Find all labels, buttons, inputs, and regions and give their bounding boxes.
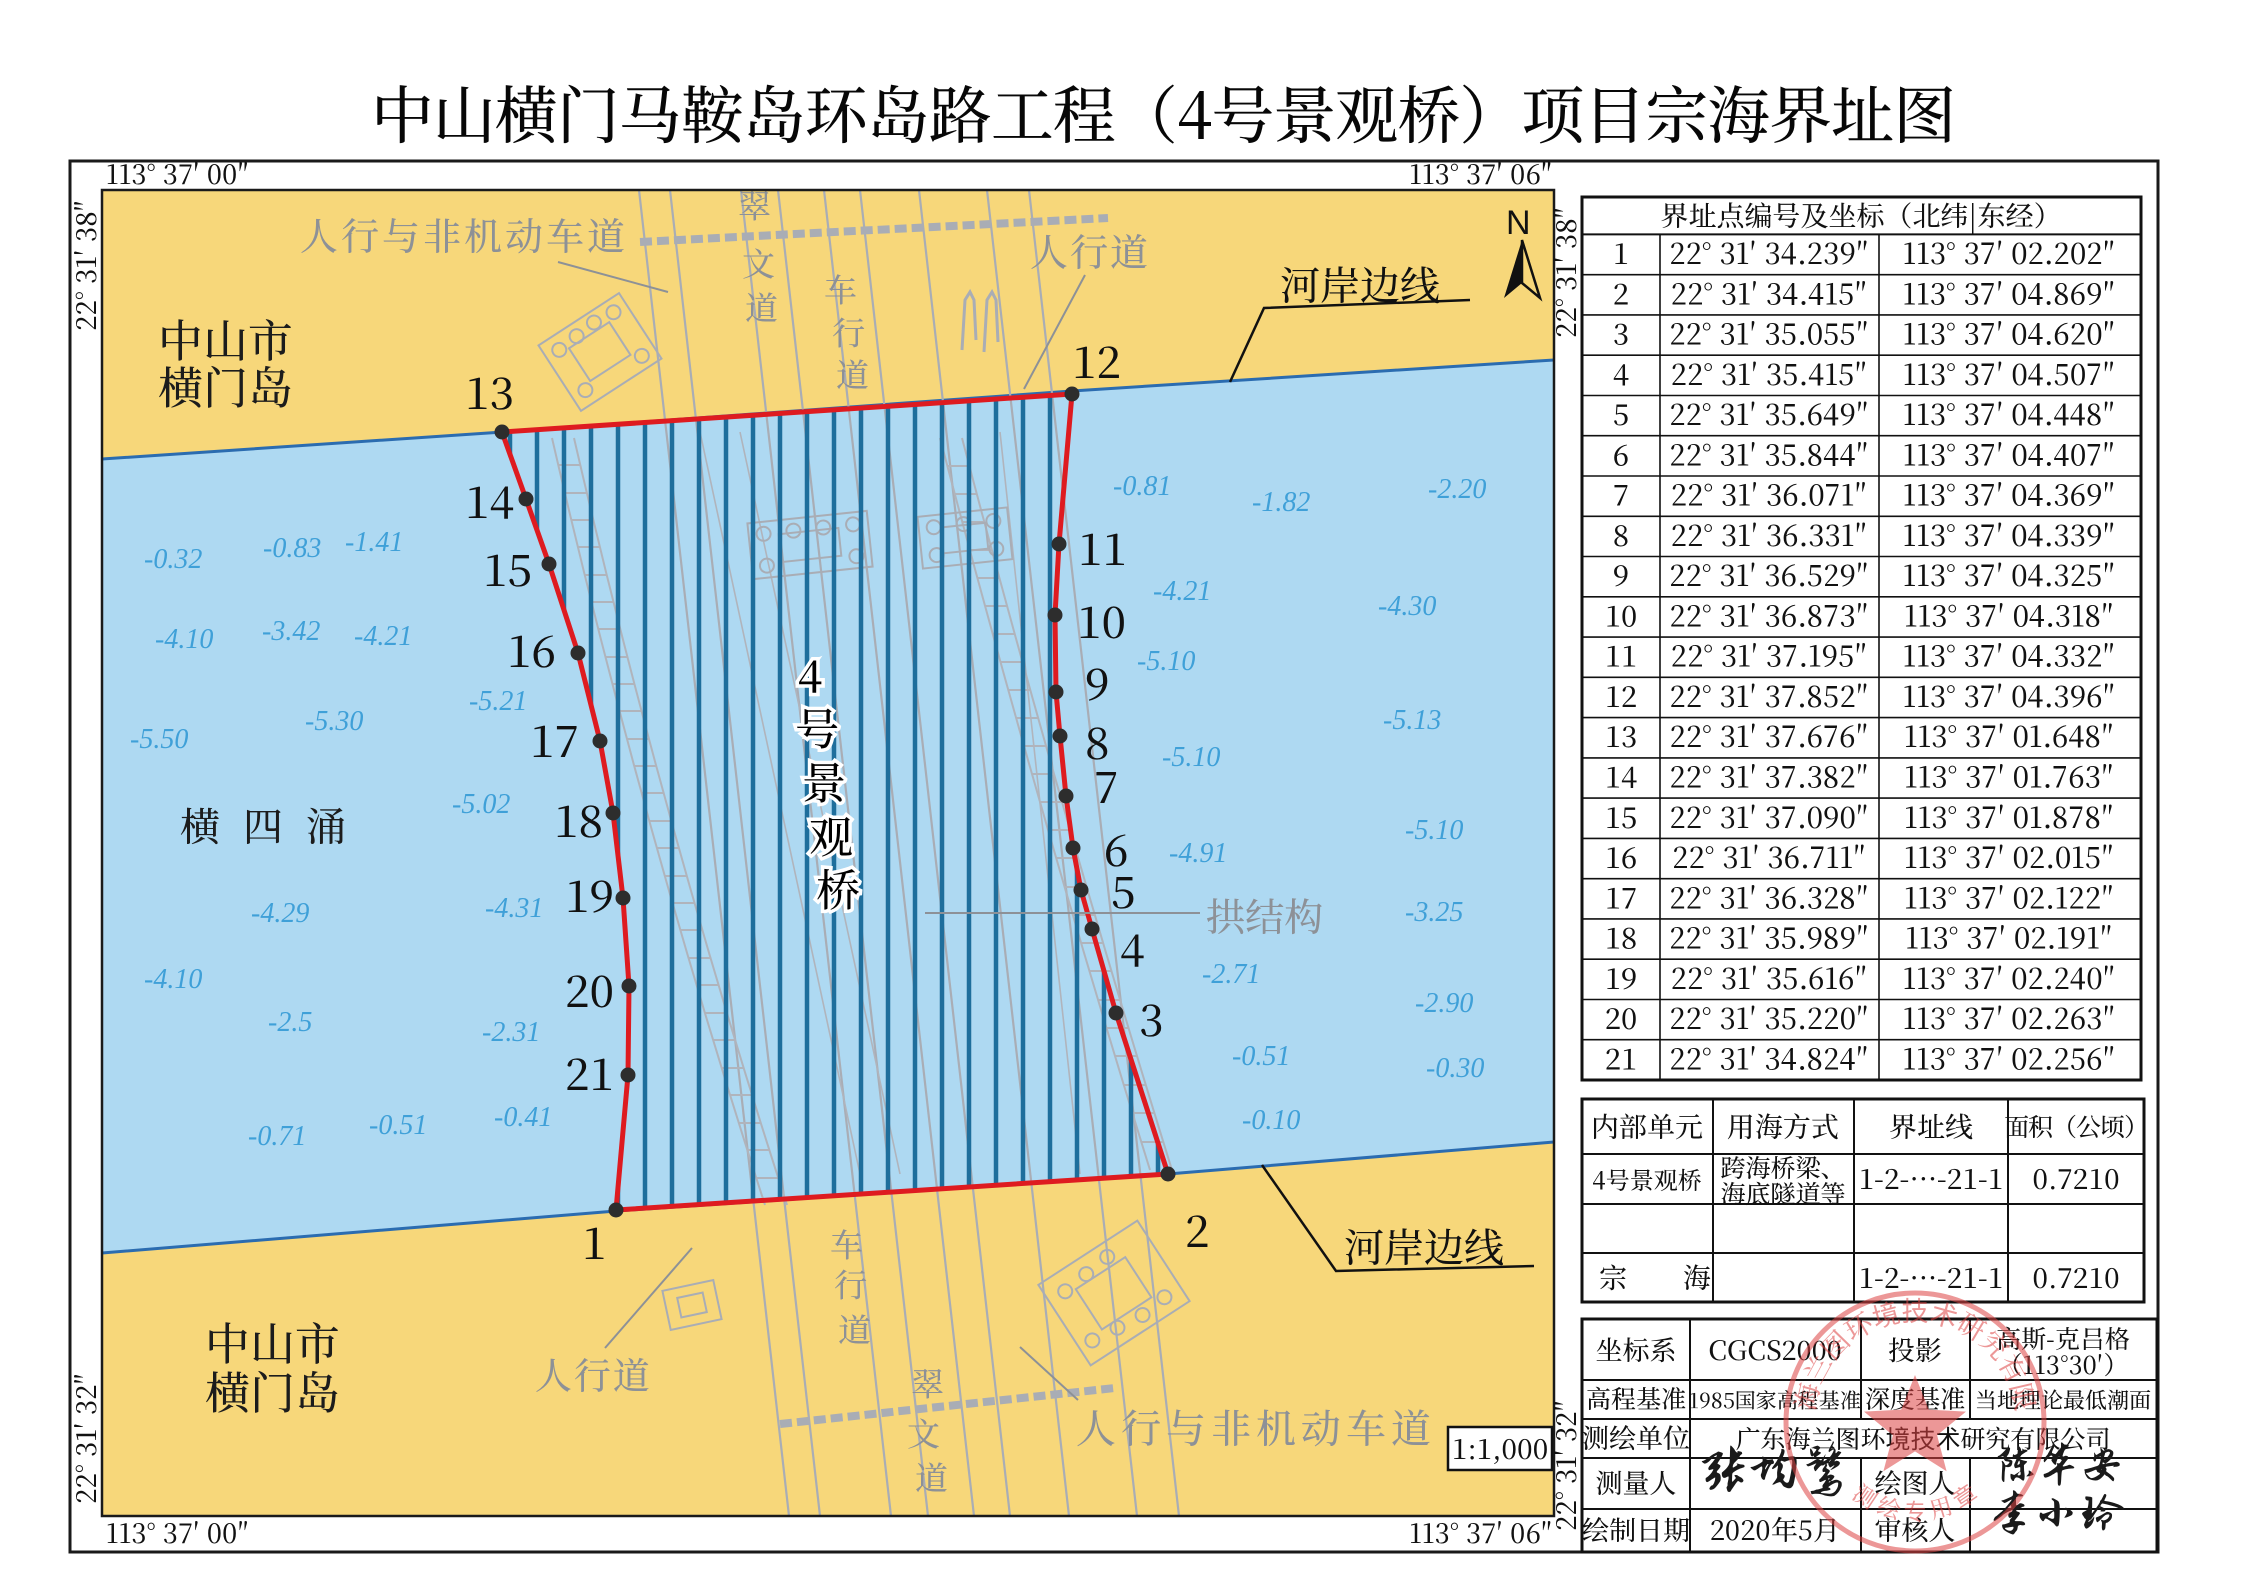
svg-text:22° 31′ 37.852″: 22° 31′ 37.852″ — [1669, 675, 1869, 716]
svg-text:18: 18 — [1605, 917, 1637, 958]
svg-text:113° 37′ 00″: 113° 37′ 00″ — [106, 153, 250, 192]
svg-text:-5.30: -5.30 — [305, 706, 363, 737]
svg-text:22° 31′ 37.090″: 22° 31′ 37.090″ — [1669, 796, 1869, 837]
svg-text:14: 14 — [465, 467, 514, 531]
svg-text:界址点编号及坐标（北纬|东经）: 界址点编号及坐标（北纬|东经） — [1661, 195, 2062, 235]
svg-text:文: 文 — [742, 239, 775, 286]
svg-text:-0.32: -0.32 — [144, 544, 202, 575]
svg-text:行: 行 — [834, 1260, 867, 1307]
svg-text:22° 31′ 35.415″: 22° 31′ 35.415″ — [1671, 353, 1868, 394]
svg-text:5: 5 — [1613, 393, 1629, 434]
svg-text:11: 11 — [1078, 514, 1127, 578]
svg-text:海底隧道等: 海底隧道等 — [1720, 1175, 1845, 1211]
svg-text:河岸边线: 河岸边线 — [1344, 1217, 1504, 1274]
svg-text:22° 31′ 36.331″: 22° 31′ 36.331″ — [1671, 514, 1868, 555]
svg-text:113° 37′ 06″: 113° 37′ 06″ — [1409, 1512, 1553, 1551]
svg-text:翠: 翠 — [738, 181, 771, 228]
svg-text:-3.25: -3.25 — [1405, 897, 1463, 928]
svg-text:22° 31′ 32″: 22° 31′ 32″ — [65, 1372, 104, 1503]
svg-text:人行道: 人行道 — [535, 1346, 652, 1400]
svg-text:测绘单位: 测绘单位 — [1582, 1417, 1690, 1456]
svg-text:横门岛: 横门岛 — [205, 1357, 340, 1422]
svg-text:-4.10: -4.10 — [155, 624, 213, 655]
svg-text:-0.83: -0.83 — [263, 533, 321, 564]
svg-text:16: 16 — [1605, 836, 1637, 877]
svg-text:翠: 翠 — [911, 1359, 944, 1406]
svg-text:9: 9 — [1613, 554, 1629, 595]
svg-text:15: 15 — [483, 535, 532, 599]
svg-text:-4.21: -4.21 — [1153, 576, 1211, 607]
svg-text:-1.41: -1.41 — [345, 527, 403, 558]
svg-text:行: 行 — [832, 308, 865, 355]
svg-text:-0.41: -0.41 — [494, 1102, 552, 1133]
svg-text:10: 10 — [1605, 594, 1637, 635]
svg-text:拱结构: 拱结构 — [1206, 887, 1323, 943]
svg-text:113° 37′ 04.507″: 113° 37′ 04.507″ — [1903, 353, 2116, 394]
svg-text:22° 31′ 36.711″: 22° 31′ 36.711″ — [1672, 836, 1866, 877]
svg-text:-5.13: -5.13 — [1383, 705, 1441, 736]
svg-text:113° 37′ 01.878″: 113° 37′ 01.878″ — [1904, 796, 2114, 837]
svg-text:坐标系: 坐标系 — [1596, 1329, 1677, 1368]
svg-text:-0.51: -0.51 — [369, 1110, 427, 1141]
svg-text:-4.29: -4.29 — [251, 898, 309, 929]
svg-text:20: 20 — [1605, 997, 1637, 1038]
svg-text:22° 31′ 37.382″: 22° 31′ 37.382″ — [1669, 756, 1869, 797]
svg-text:113° 37′ 04.325″: 113° 37′ 04.325″ — [1902, 554, 2115, 595]
svg-text:113° 37′ 04.318″: 113° 37′ 04.318″ — [1904, 594, 2114, 635]
svg-text:-5.02: -5.02 — [452, 789, 510, 820]
svg-text:横四涌: 横四涌 — [180, 796, 369, 853]
svg-text:面积（公顷）: 面积（公顷） — [2004, 1108, 2148, 1144]
svg-text:113° 37′ 04.448″: 113° 37′ 04.448″ — [1903, 393, 2116, 434]
svg-text:22° 31′ 35.055″: 22° 31′ 35.055″ — [1669, 313, 1869, 354]
svg-text:9: 9 — [1085, 649, 1110, 713]
svg-text:宗 海: 宗 海 — [1599, 1257, 1711, 1297]
svg-text:N: N — [1506, 204, 1531, 242]
svg-text:10: 10 — [1077, 587, 1126, 651]
svg-text:11: 11 — [1605, 635, 1637, 676]
svg-text:21: 21 — [1605, 1037, 1637, 1078]
svg-text:7: 7 — [1613, 474, 1629, 515]
svg-text:-5.10: -5.10 — [1162, 742, 1220, 773]
svg-text:3: 3 — [1139, 985, 1164, 1049]
svg-text:-5.10: -5.10 — [1137, 646, 1195, 677]
svg-text:-4.21: -4.21 — [354, 621, 412, 652]
svg-text:113° 37′ 04.396″: 113° 37′ 04.396″ — [1902, 675, 2115, 716]
svg-text:113° 37′ 04.407″: 113° 37′ 04.407″ — [1903, 433, 2116, 474]
svg-text:6: 6 — [1613, 433, 1629, 474]
svg-text:测 绘 专 用 章: 测 绘 专 用 章 — [1847, 1475, 1983, 1527]
svg-text:道: 道 — [836, 350, 869, 397]
svg-text:22° 31′ 35.989″: 22° 31′ 35.989″ — [1669, 917, 1869, 958]
svg-text:12: 12 — [1605, 675, 1637, 716]
svg-text:8: 8 — [1613, 514, 1629, 555]
svg-text:113° 37′ 02.015″: 113° 37′ 02.015″ — [1904, 836, 2114, 877]
svg-text:113° 37′ 04.339″: 113° 37′ 04.339″ — [1902, 514, 2115, 555]
svg-text:1: 1 — [582, 1208, 607, 1272]
svg-text:道: 道 — [915, 1453, 948, 1500]
svg-text:17: 17 — [1605, 876, 1637, 917]
svg-text:-5.21: -5.21 — [469, 686, 527, 717]
svg-text:16: 16 — [507, 616, 556, 680]
svg-text:22° 31′ 35.220″: 22° 31′ 35.220″ — [1669, 997, 1869, 1038]
svg-text:桥: 桥 — [816, 855, 860, 919]
svg-text:4: 4 — [1120, 915, 1145, 979]
svg-text:6: 6 — [1104, 815, 1129, 879]
svg-text:-0.30: -0.30 — [1426, 1053, 1484, 1084]
svg-text:-4.10: -4.10 — [144, 964, 202, 995]
svg-text:0.7210: 0.7210 — [2032, 1158, 2119, 1198]
svg-text:-4.30: -4.30 — [1378, 591, 1436, 622]
svg-text:17: 17 — [530, 706, 579, 770]
svg-text:21: 21 — [565, 1039, 614, 1103]
svg-text:113° 37′ 04.869″: 113° 37′ 04.869″ — [1902, 272, 2115, 313]
svg-text:人行与非机动车道: 人行与非机动车道 — [1076, 1398, 1436, 1455]
svg-text:113° 37′ 04.332″: 113° 37′ 04.332″ — [1903, 635, 2116, 676]
svg-text:界址线: 界址线 — [1889, 1106, 1973, 1146]
svg-text:22° 31′ 37.195″: 22° 31′ 37.195″ — [1671, 635, 1868, 676]
svg-text:人行与非机动车道: 人行与非机动车道 — [300, 206, 628, 261]
svg-text:13: 13 — [1605, 715, 1637, 756]
svg-text:113° 37′ 01.648″: 113° 37′ 01.648″ — [1904, 715, 2114, 756]
svg-text:-5.50: -5.50 — [130, 724, 188, 755]
svg-text:22° 31′ 37.676″: 22° 31′ 37.676″ — [1669, 715, 1868, 756]
svg-text:113° 37′ 02.202″: 113° 37′ 02.202″ — [1902, 232, 2115, 273]
svg-text:人行道: 人行道 — [1030, 222, 1150, 277]
svg-text:22° 31′ 34.824″: 22° 31′ 34.824″ — [1669, 1037, 1869, 1078]
svg-text:20: 20 — [565, 956, 614, 1020]
svg-text:13: 13 — [465, 358, 514, 422]
svg-text:19: 19 — [565, 861, 614, 925]
svg-text:113° 37′ 02.191″: 113° 37′ 02.191″ — [1905, 917, 2113, 958]
svg-text:22° 31′ 34.239″: 22° 31′ 34.239″ — [1669, 232, 1869, 273]
svg-text:2: 2 — [1613, 272, 1629, 313]
svg-text:高程基准: 高程基准 — [1586, 1380, 1686, 1416]
svg-text:-2.20: -2.20 — [1428, 474, 1486, 505]
svg-text:1-2-···-21-1: 1-2-···-21-1 — [1859, 1158, 2004, 1198]
svg-text:4: 4 — [1613, 353, 1629, 394]
svg-text:113° 37′ 02.256″: 113° 37′ 02.256″ — [1902, 1037, 2115, 1078]
svg-text:-0.71: -0.71 — [248, 1121, 306, 1152]
svg-text:-0.10: -0.10 — [1242, 1105, 1300, 1136]
svg-text:113° 37′ 04.620″: 113° 37′ 04.620″ — [1902, 313, 2115, 354]
svg-text:22° 31′ 35.649″: 22° 31′ 35.649″ — [1669, 393, 1869, 434]
svg-text:12: 12 — [1072, 327, 1121, 391]
svg-text:22° 31′ 36.071″: 22° 31′ 36.071″ — [1671, 474, 1868, 515]
svg-text:-1.82: -1.82 — [1252, 487, 1310, 518]
svg-text:113° 37′ 02.263″: 113° 37′ 02.263″ — [1902, 997, 2115, 1038]
svg-text:1: 1 — [1613, 232, 1629, 273]
svg-text:22° 31′ 36.328″: 22° 31′ 36.328″ — [1669, 876, 1869, 917]
svg-text:22° 31′ 35.616″: 22° 31′ 35.616″ — [1670, 957, 1867, 998]
svg-text:-0.81: -0.81 — [1113, 471, 1171, 502]
svg-text:4号景观桥: 4号景观桥 — [1592, 1161, 1702, 1196]
svg-text:15: 15 — [1605, 796, 1637, 837]
svg-text:19: 19 — [1605, 957, 1637, 998]
svg-text:18: 18 — [554, 786, 603, 850]
svg-text:道: 道 — [838, 1305, 871, 1352]
svg-text:内部单元: 内部单元 — [1591, 1106, 1703, 1146]
svg-text:22° 31′ 38″: 22° 31′ 38″ — [1545, 206, 1584, 337]
svg-text:车: 车 — [824, 265, 857, 312]
svg-text:22° 31′ 38″: 22° 31′ 38″ — [65, 199, 104, 330]
svg-text:-4.31: -4.31 — [485, 893, 543, 924]
svg-text:113° 37′ 00″: 113° 37′ 00″ — [106, 1512, 250, 1551]
svg-text:-2.31: -2.31 — [482, 1017, 540, 1048]
svg-text:绘制日期: 绘制日期 — [1582, 1509, 1690, 1548]
svg-text:横门岛: 横门岛 — [158, 352, 293, 417]
svg-text:道: 道 — [745, 283, 778, 330]
svg-text:用海方式: 用海方式 — [1727, 1106, 1839, 1146]
svg-text:-4.91: -4.91 — [1169, 838, 1227, 869]
svg-text:14: 14 — [1605, 756, 1637, 797]
svg-text:-3.42: -3.42 — [262, 616, 320, 647]
svg-text:2: 2 — [1185, 1196, 1210, 1260]
svg-text:113° 37′ 02.122″: 113° 37′ 02.122″ — [1904, 876, 2114, 917]
svg-text:-2.90: -2.90 — [1415, 988, 1473, 1019]
svg-text:22° 31′ 36.529″: 22° 31′ 36.529″ — [1669, 554, 1869, 595]
svg-text:22° 31′ 35.844″: 22° 31′ 35.844″ — [1669, 433, 1869, 474]
svg-text:113° 37′ 06″: 113° 37′ 06″ — [1409, 153, 1553, 192]
svg-text:-2.5: -2.5 — [268, 1007, 312, 1038]
svg-text:113° 37′ 04.369″: 113° 37′ 04.369″ — [1902, 474, 2115, 515]
svg-text:-5.10: -5.10 — [1405, 815, 1463, 846]
svg-text:文: 文 — [907, 1409, 940, 1456]
svg-text:8: 8 — [1085, 708, 1110, 772]
svg-text:-0.51: -0.51 — [1232, 1041, 1290, 1072]
svg-text:3: 3 — [1613, 313, 1629, 354]
svg-text:22° 31′ 36.873″: 22° 31′ 36.873″ — [1669, 594, 1869, 635]
svg-text:-2.71: -2.71 — [1202, 959, 1260, 990]
svg-text:113° 37′ 02.240″: 113° 37′ 02.240″ — [1902, 957, 2115, 998]
svg-text:22° 31′ 34.415″: 22° 31′ 34.415″ — [1671, 272, 1868, 313]
svg-text:113° 37′ 01.763″: 113° 37′ 01.763″ — [1904, 756, 2114, 797]
svg-text:1:1,000: 1:1,000 — [1452, 1428, 1549, 1468]
svg-text:测量人: 测量人 — [1596, 1462, 1677, 1501]
